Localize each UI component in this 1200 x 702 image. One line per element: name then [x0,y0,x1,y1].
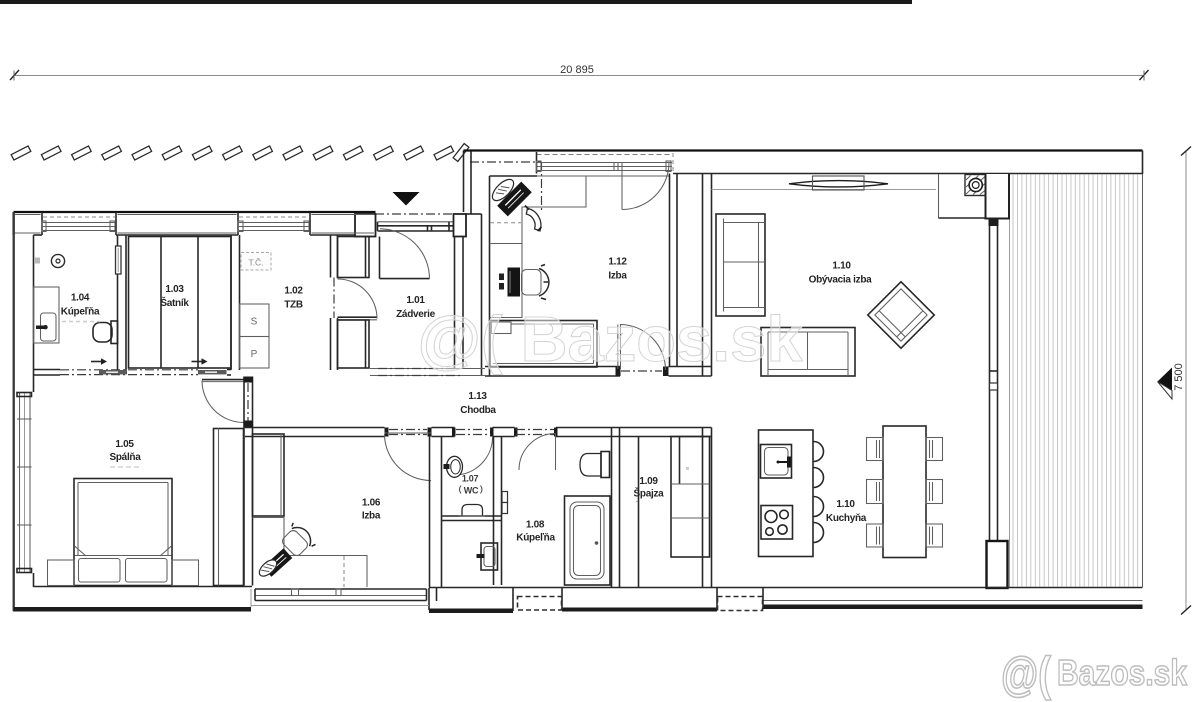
svg-text:Bazos.sk: Bazos.sk [1057,652,1188,693]
svg-text:20 895: 20 895 [560,64,594,76]
svg-text:1.08: 1.08 [526,520,545,531]
svg-text:Spálňa: Spálňa [110,452,142,463]
svg-text:TZB: TZB [284,300,303,311]
svg-text:1.06: 1.06 [362,498,381,509]
svg-text:P: P [251,349,258,360]
svg-text:Kúpeľňa: Kúpeľňa [61,307,100,318]
svg-text:Kúpeľňa: Kúpeľňa [516,533,555,544]
svg-text:1.07: 1.07 [462,474,479,484]
svg-text:1.02: 1.02 [284,286,303,297]
svg-text:1.10: 1.10 [832,261,851,272]
svg-text:@(: @( [1001,647,1051,700]
svg-text:1.10: 1.10 [836,499,855,510]
svg-text:WC: WC [464,486,479,496]
svg-text:Obývacia izba: Obývacia izba [809,275,873,286]
svg-text:Izba: Izba [362,511,381,522]
svg-text:1.12: 1.12 [608,257,627,268]
svg-text:1.09: 1.09 [639,476,658,487]
svg-text:Kuchyňa: Kuchyňa [826,513,867,524]
svg-text:@( Bazos.sk: @( Bazos.sk [418,303,803,375]
svg-text:1.13: 1.13 [468,391,487,402]
svg-text:7 500: 7 500 [1173,363,1185,391]
svg-text:S: S [251,317,258,328]
svg-text:1.05: 1.05 [115,439,134,450]
svg-text:T.Č.: T.Č. [248,258,263,268]
svg-text:1.04: 1.04 [71,293,90,304]
svg-text:1.03: 1.03 [165,284,184,295]
svg-text:Špajza: Špajza [634,487,665,500]
svg-text:Šatník: Šatník [160,296,189,309]
svg-text:Chodba: Chodba [460,405,496,416]
svg-text:Izba: Izba [608,271,627,282]
